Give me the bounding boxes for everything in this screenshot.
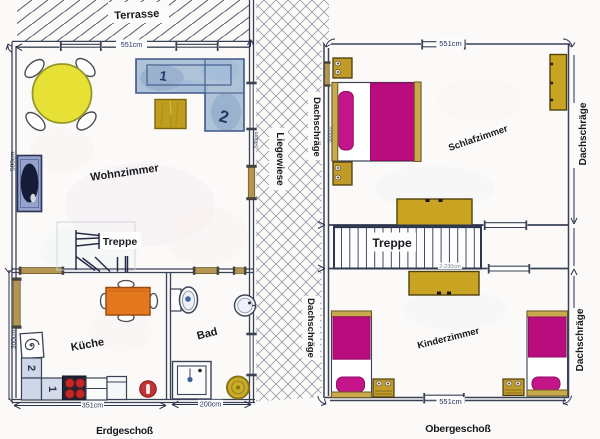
svg-text:551cm: 551cm (439, 397, 462, 406)
svg-text:551cm: 551cm (121, 40, 143, 49)
svg-text:Dachschräge: Dachschräge (311, 97, 322, 157)
svg-text:Bad: Bad (196, 326, 219, 343)
svg-text:Dachschräge: Dachschräge (305, 298, 316, 358)
svg-text:Treppe: Treppe (103, 236, 138, 248)
svg-text:Obergeschoß: Obergeschoß (425, 423, 491, 435)
svg-text:351cm: 351cm (82, 401, 104, 410)
svg-text:300cm: 300cm (11, 329, 18, 349)
svg-text:Treppe: Treppe (372, 236, 412, 250)
svg-text:Dachschräge: Dachschräge (575, 308, 586, 371)
svg-text:1: 1 (46, 386, 58, 392)
svg-text:Küche: Küche (70, 336, 105, 354)
svg-text:2-230cm: 2-230cm (439, 264, 461, 270)
svg-text:500cm: 500cm (10, 151, 17, 171)
svg-text:551cm: 551cm (439, 39, 462, 48)
svg-text:Dachschräge: Dachschräge (578, 102, 589, 165)
svg-text:2: 2 (25, 365, 37, 371)
svg-text:200cm: 200cm (200, 400, 222, 409)
svg-text:Terrasse: Terrasse (114, 8, 160, 22)
svg-text:Erdgeschoß: Erdgeschoß (96, 426, 153, 437)
svg-text:Liegewiese: Liegewiese (274, 132, 285, 186)
svg-text:Schlafzimmer: Schlafzimmer (447, 123, 509, 154)
svg-text:540cm: 540cm (254, 131, 260, 148)
